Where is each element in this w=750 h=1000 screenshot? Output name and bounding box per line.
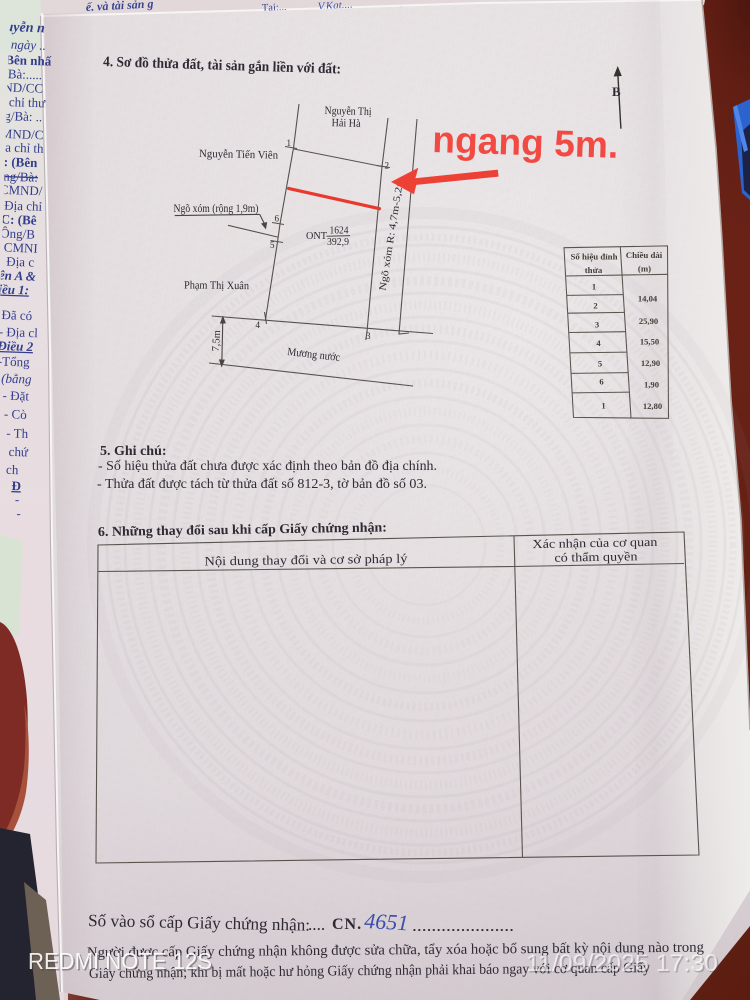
svg-text:1,90: 1,90	[644, 380, 659, 390]
svg-text:(bằng: (bằng	[1, 371, 32, 387]
svg-text:-: -	[15, 492, 20, 507]
svg-text:15,50: 15,50	[640, 337, 659, 347]
svg-text:ngang 5m.: ngang 5m.	[432, 119, 619, 166]
svg-text:12,90: 12,90	[641, 358, 660, 368]
svg-text:-: -	[16, 506, 21, 521]
svg-text:....: ....	[308, 915, 325, 934]
svg-text:6: 6	[599, 377, 604, 387]
svg-text:Nguyễn Tiến Viên: Nguyễn Tiến Viên	[199, 148, 279, 162]
svg-text:14,04: 14,04	[638, 294, 658, 304]
svg-text:4: 4	[256, 320, 261, 330]
svg-text:- Thửa đất được tách từ thửa đ: - Thửa đất được tách từ thửa đất số 812-…	[97, 476, 427, 491]
svg-text:Ngõ xóm (rộng 1,9m): Ngõ xóm (rộng 1,9m)	[174, 203, 259, 215]
svg-text:5. Ghi chú:: 5. Ghi chú:	[100, 444, 167, 459]
svg-text:- Đặt: - Đặt	[2, 388, 29, 404]
svg-text:5: 5	[598, 359, 602, 369]
svg-text:Hải Hà: Hải Hà	[331, 117, 360, 130]
svg-text:6: 6	[275, 214, 280, 224]
svg-text:Số hiệu đỉnh: Số hiệu đỉnh	[571, 252, 618, 262]
svg-text:- Số hiệu thửa đất chưa được x: - Số hiệu thửa đất chưa được xác định th…	[98, 458, 437, 473]
svg-text:4: 4	[596, 338, 601, 348]
svg-text:3: 3	[366, 331, 371, 341]
svg-text:ngày ..: ngày ..	[11, 37, 47, 53]
svg-text:ONT: ONT	[306, 230, 327, 242]
svg-text:chứ: chứ	[8, 444, 29, 460]
svg-text:Nguyễn Thị: Nguyễn Thị	[324, 105, 371, 118]
svg-text:25,90: 25,90	[639, 316, 658, 326]
svg-text:B: B	[612, 84, 621, 99]
svg-text:thửa: thửa	[585, 265, 603, 275]
svg-text:Điều 2: Điều 2	[0, 338, 34, 354]
svg-text:4651: 4651	[364, 908, 409, 935]
svg-text:iều 1:: iều 1:	[0, 281, 29, 297]
svg-text:Nội dung thay đổi và cơ sở phá: Nội dung thay đổi và cơ sở pháp lý	[204, 552, 408, 569]
svg-text:7,5m: 7,5m	[211, 330, 223, 352]
svg-text:uyễn n: uyễn n	[5, 20, 45, 36]
svg-text:3: 3	[595, 320, 599, 330]
svg-text:CN.: CN.	[332, 916, 362, 933]
svg-text:Chiều dài: Chiều dài	[626, 250, 663, 260]
svg-text:Phạm Thị Xuân: Phạm Thị Xuân	[184, 280, 249, 293]
svg-text:12,80: 12,80	[643, 401, 662, 411]
svg-text:g/Bà: ..: g/Bà: ..	[4, 108, 42, 124]
svg-text:REDMI NOTE 12S: REDMI NOTE 12S	[28, 948, 212, 974]
svg-text:- Th: - Th	[6, 425, 29, 441]
svg-text:1: 1	[287, 138, 292, 148]
svg-text:có thẩm quyền: có thẩm quyền	[554, 549, 637, 564]
svg-text:Đã có: Đã có	[1, 307, 32, 323]
svg-text:1624: 1624	[330, 225, 349, 237]
svg-text:.....................: .....................	[412, 916, 514, 935]
svg-text:- Cò: - Cò	[4, 406, 27, 422]
svg-text:392,9: 392,9	[327, 236, 349, 248]
svg-text:ch: ch	[6, 462, 19, 477]
svg-text:Xác nhận của cơ quan: Xác nhận của cơ quan	[532, 535, 657, 551]
svg-text:CMND/: CMND/	[0, 182, 43, 198]
svg-text:1: 1	[592, 282, 596, 292]
svg-text:5: 5	[270, 240, 275, 250]
svg-text:(m): (m)	[638, 264, 651, 274]
svg-text:-Tổng: -Tổng	[0, 353, 30, 369]
svg-text:11/09/2025 17:30: 11/09/2025 17:30	[526, 950, 718, 977]
svg-text:2: 2	[593, 301, 597, 311]
svg-text:2: 2	[385, 161, 390, 171]
svg-text:1: 1	[601, 401, 605, 411]
